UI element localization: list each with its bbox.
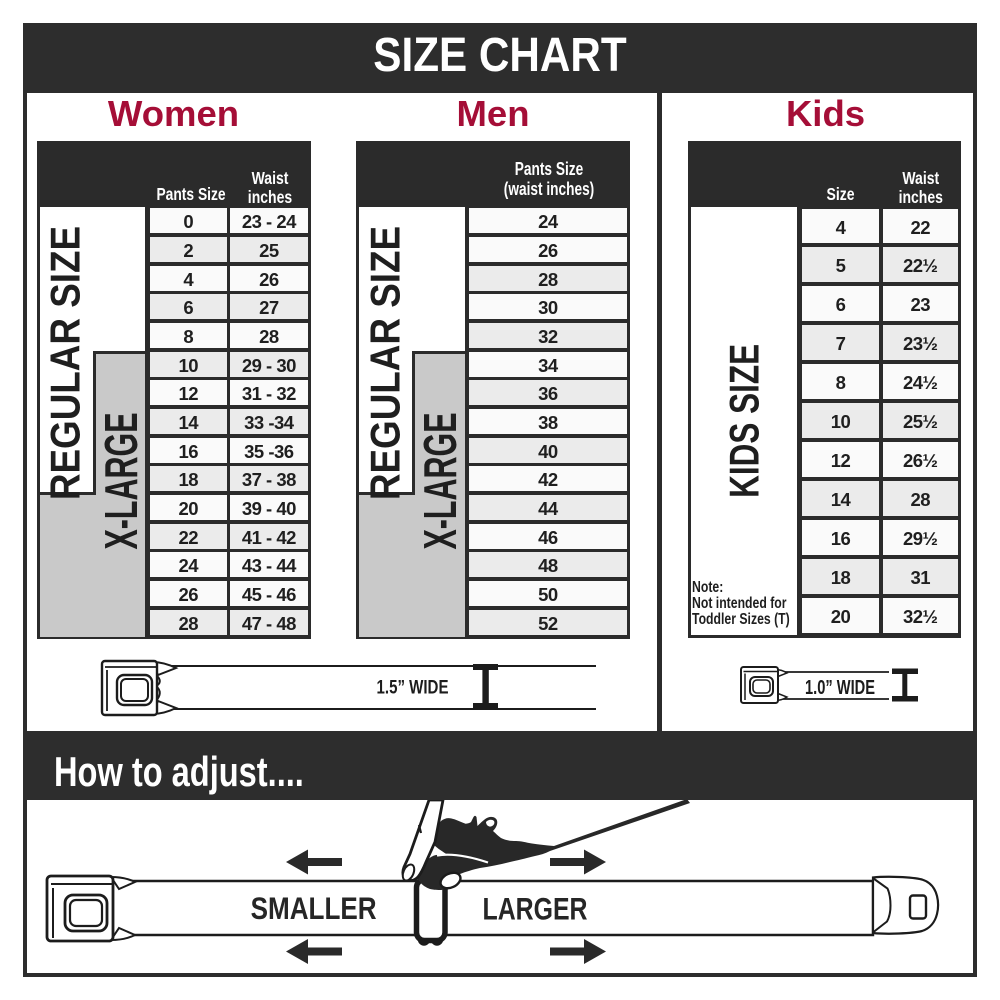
svg-text:LARGER: LARGER — [483, 891, 588, 927]
svg-text:1.0” WIDE: 1.0” WIDE — [805, 677, 875, 699]
svg-text:1.5” WIDE: 1.5” WIDE — [377, 678, 449, 699]
svg-text:SMALLER: SMALLER — [251, 890, 377, 926]
